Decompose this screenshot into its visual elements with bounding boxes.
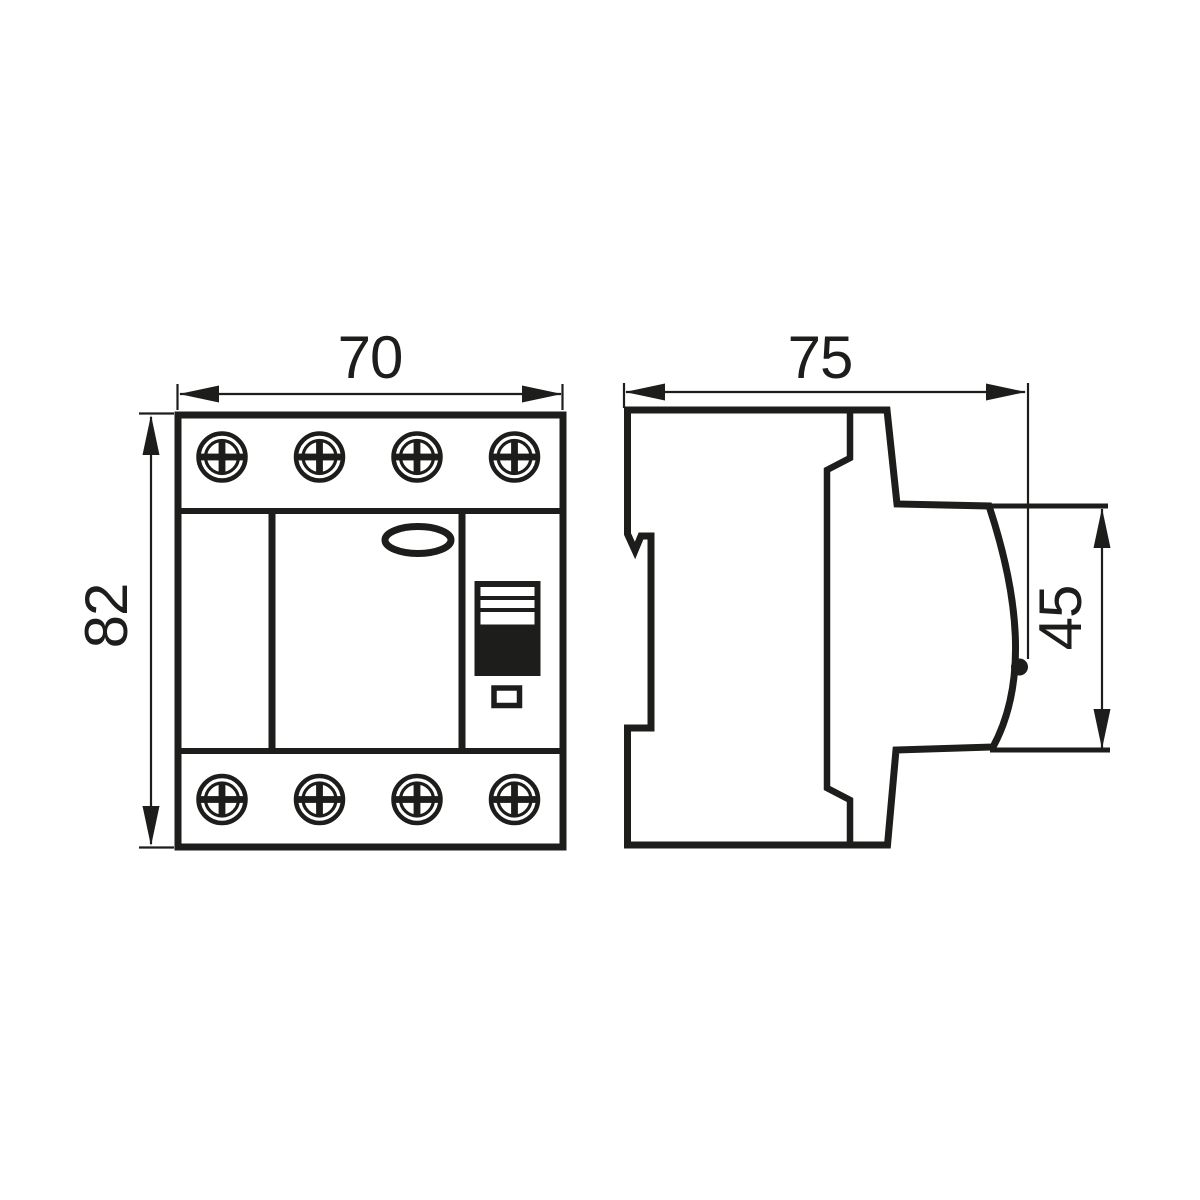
- indicator-window-icon: [494, 688, 520, 706]
- dimension-arrow-icon: [625, 384, 665, 401]
- terminal-screw-icon: [199, 434, 246, 481]
- lever-tip-dot-icon: [1011, 659, 1028, 676]
- front-panel-height-dimension: 45: [1027, 508, 1111, 749]
- dimension-arrow-icon: [143, 806, 160, 846]
- terminal-screw-icon: [296, 776, 343, 823]
- technical-drawing-svg: 70 82 75 45: [0, 0, 1200, 1200]
- toggle-switch-icon: [475, 584, 541, 676]
- side-depth-label: 75: [788, 324, 853, 391]
- terminal-screw-icon: [199, 776, 246, 823]
- terminal-screw-icon: [296, 434, 343, 481]
- front-height-label: 82: [73, 584, 140, 649]
- terminal-screw-icon: [491, 434, 538, 481]
- dimension-arrow-icon: [143, 415, 160, 455]
- label-window-icon: [385, 527, 451, 554]
- front-height-dimension: 82: [73, 414, 174, 848]
- dimension-arrow-icon: [522, 386, 562, 403]
- side-view-profile-outline: [628, 410, 1016, 845]
- terminal-screw-icon: [394, 776, 441, 823]
- dimension-drawing-page: 70 82 75 45: [0, 0, 1200, 1200]
- front-width-dimension: 70: [178, 324, 563, 410]
- switch-lever-black: [475, 625, 541, 677]
- front-width-label: 70: [338, 324, 403, 391]
- front-panel-height-label: 45: [1027, 586, 1094, 651]
- dimension-arrow-icon: [1094, 709, 1111, 749]
- dimension-arrow-icon: [1094, 508, 1111, 548]
- dimension-arrow-icon: [986, 384, 1026, 401]
- dimension-arrow-icon: [179, 386, 219, 403]
- terminal-screw-icon: [491, 776, 538, 823]
- terminal-screw-icon: [394, 434, 441, 481]
- front-view: [178, 415, 563, 847]
